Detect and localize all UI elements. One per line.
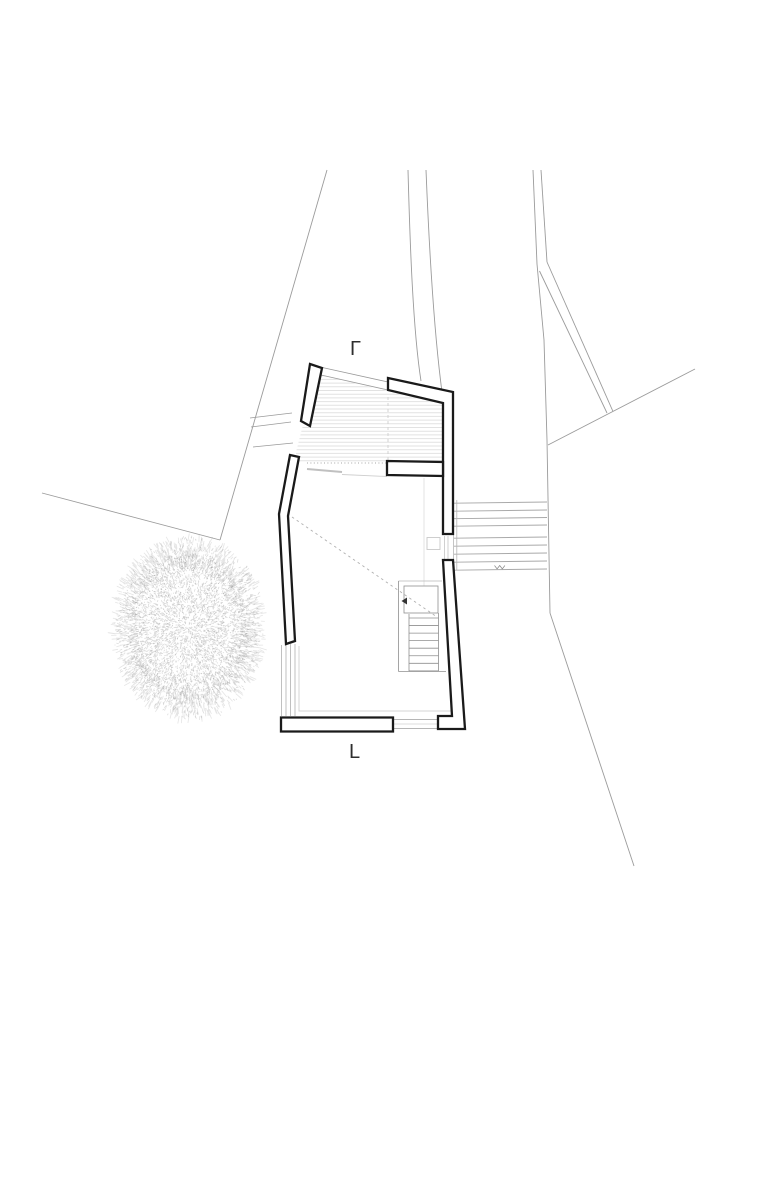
section-marker-top: Γ (350, 339, 361, 359)
floor-plan-drawing (0, 0, 780, 1188)
architectural-site-plan: Γ L (0, 0, 780, 1188)
section-marker-bottom: L (349, 742, 360, 762)
